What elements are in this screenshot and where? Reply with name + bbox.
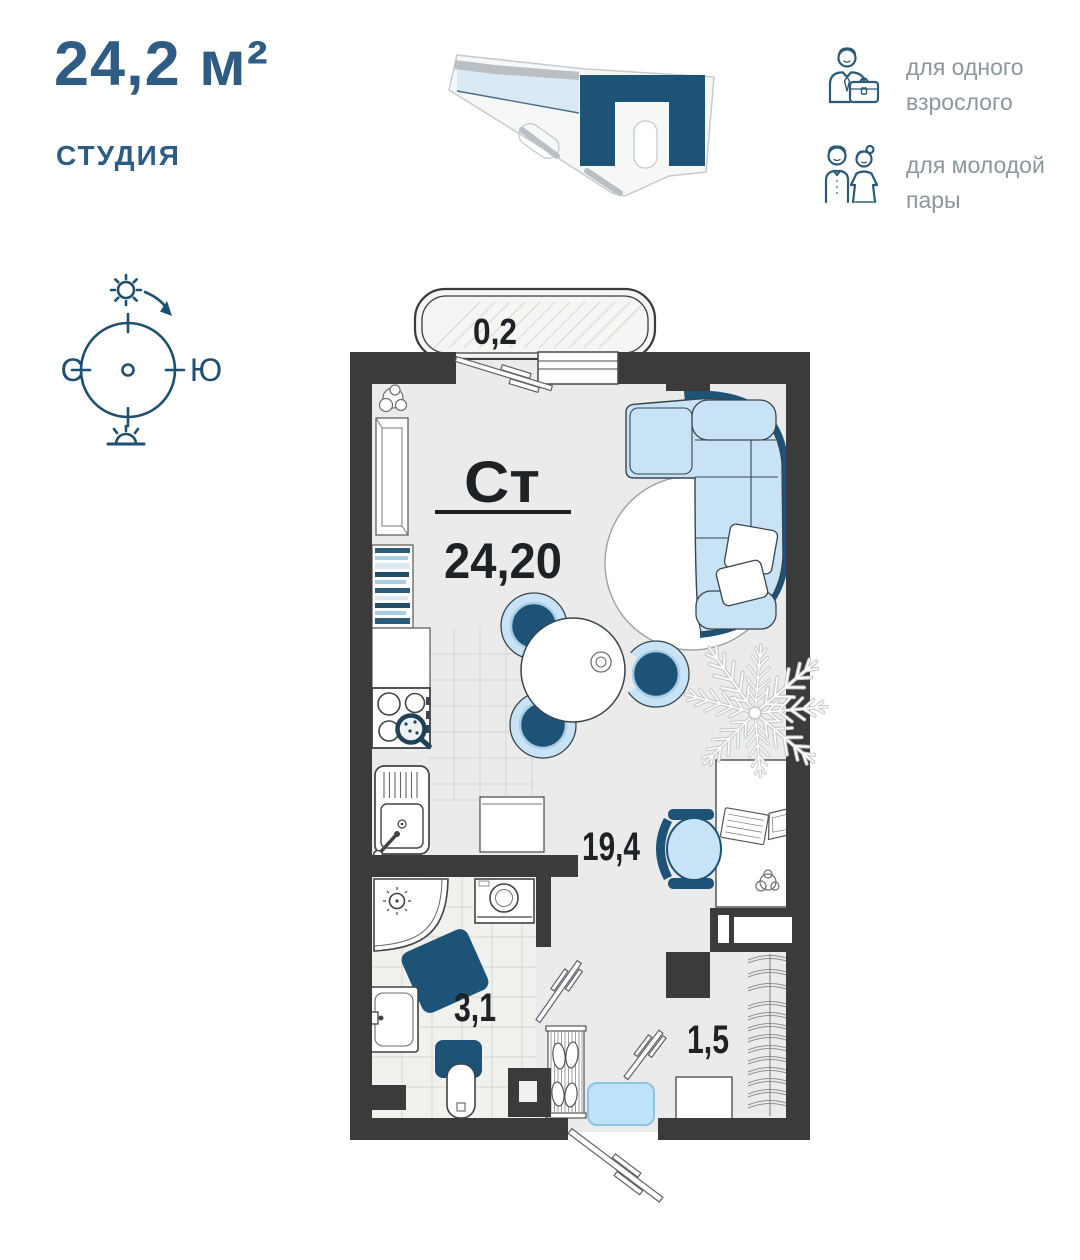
balcony-area-label: 0,2	[473, 311, 517, 352]
wardrobe	[376, 418, 408, 535]
unit-area-label: 24,20	[444, 533, 562, 589]
shoe-rack	[546, 1026, 586, 1118]
dining-table	[521, 618, 625, 722]
hallway-area-label: 1,5	[687, 1018, 729, 1062]
sunset-icon	[108, 426, 144, 444]
shelf-unit	[372, 545, 413, 628]
compass: С Ю	[48, 268, 248, 473]
kitchen-stove	[372, 688, 432, 750]
audience-label: для молодой пары	[906, 142, 1045, 217]
balcony	[415, 289, 655, 359]
entrance-door	[565, 1124, 667, 1207]
unit-code-label: Ст	[464, 450, 540, 515]
unit-label-divider	[435, 510, 571, 514]
couple-icon	[820, 142, 886, 208]
compass-north-label: С	[60, 352, 83, 388]
audience-item-couple: для молодой пары	[820, 142, 1070, 217]
page-subtitle-type: СТУДИЯ	[56, 140, 181, 172]
audience-item-adult: для одного взрослого	[820, 44, 1070, 119]
bathroom-area-label: 3,1	[454, 986, 496, 1030]
bathroom-sink	[368, 987, 418, 1052]
dishwasher	[480, 797, 544, 852]
pan-icon	[398, 716, 425, 743]
floor-plan: 0,2 Ст 24,20 19,4 3,1 1,5	[338, 282, 840, 1228]
sun-icon	[111, 275, 141, 305]
living-room-area-label: 19,4	[582, 825, 641, 869]
window	[538, 352, 618, 384]
hall-cabinet	[676, 1077, 732, 1120]
kitchen-sink	[374, 766, 430, 860]
compass-south-label: Ю	[190, 352, 222, 388]
kitchen-counter	[372, 628, 430, 688]
washing-machine	[475, 879, 534, 923]
businessman-icon	[820, 44, 886, 110]
doormat	[588, 1083, 654, 1125]
page-title-area: 24,2 м²	[54, 28, 269, 100]
audience-label: для одного взрослого	[906, 44, 1024, 119]
building-site-diagram	[437, 38, 749, 216]
page-root: 24,2 м² СТУДИЯ	[0, 0, 1080, 1260]
